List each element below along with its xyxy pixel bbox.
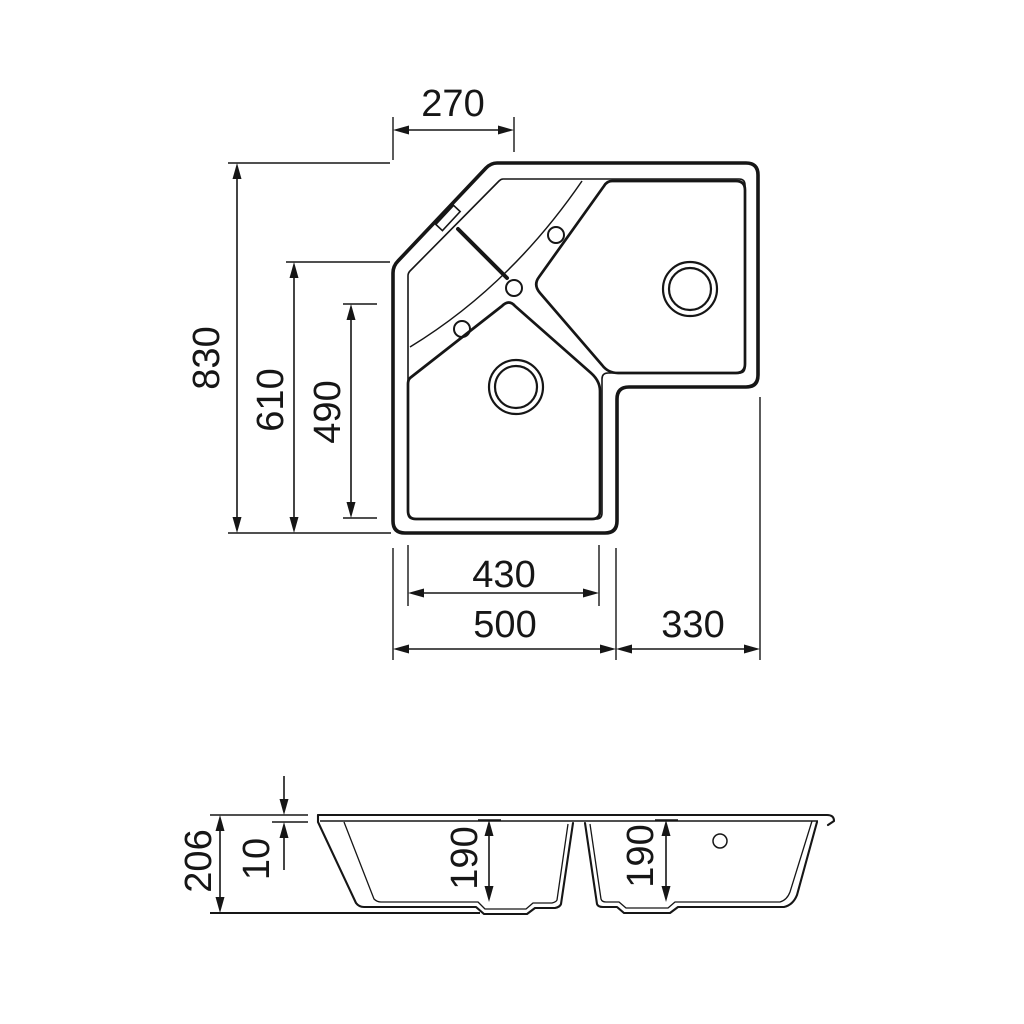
dim-right-section-width: 330 [616, 397, 760, 660]
dim-label-206: 206 [178, 829, 220, 892]
dim-label-190-left: 190 [444, 826, 486, 889]
dim-label-10: 10 [236, 838, 278, 880]
dim-label-490: 490 [307, 380, 349, 443]
bottom-bowl-drain-icon [489, 360, 543, 414]
dim-label-610: 610 [250, 368, 292, 431]
dim-left-bowl-depth: 190 [444, 820, 501, 902]
dim-bowl-depth: 490 [307, 304, 377, 518]
dim-overall-depth: 830 [186, 163, 391, 533]
tap-hole-center [506, 280, 522, 296]
dim-label-190-right: 190 [620, 824, 662, 887]
plan-view: 270 830 610 490 [186, 83, 760, 660]
dim-label-500: 500 [473, 604, 536, 646]
overflow-hole-icon [713, 834, 727, 848]
corner-sink-drawing: 270 830 610 490 [0, 0, 1024, 1024]
right-bowl-drain-icon [663, 262, 717, 316]
dim-corner-width: 270 [393, 83, 514, 160]
dim-label-430: 430 [472, 554, 535, 596]
dim-bowl-width: 430 [408, 545, 599, 606]
tap-hole-lower [454, 321, 470, 337]
dim-rim-height: 10 [236, 776, 308, 880]
dim-label-270: 270 [421, 83, 484, 125]
section-rim-top [318, 815, 834, 825]
deck-curve [410, 181, 582, 347]
dim-label-830: 830 [186, 326, 228, 389]
tap-position-cross-icon [458, 229, 507, 278]
dim-label-330: 330 [661, 604, 724, 646]
tap-hole-upper [548, 227, 564, 243]
dim-right-bowl-depth: 190 [620, 820, 678, 902]
section-view: 206 10 190 190 [178, 776, 834, 914]
technical-drawing-page: 270 830 610 490 [0, 0, 1024, 1024]
